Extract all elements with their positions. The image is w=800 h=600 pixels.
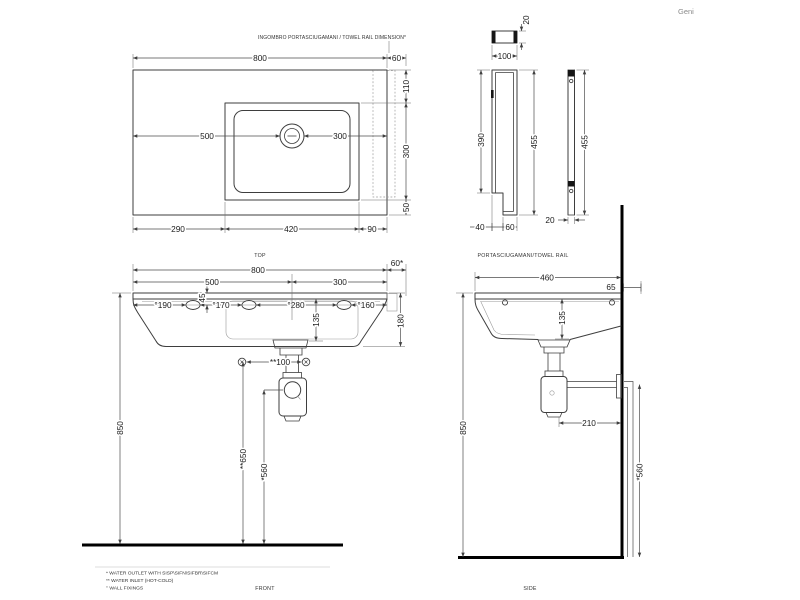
dim-top-drain-to-right: 300 bbox=[333, 131, 347, 141]
dim-front-width: 800 bbox=[251, 265, 265, 275]
dim-fix-drop: 45 bbox=[197, 293, 207, 303]
dim-top-side: 300 bbox=[401, 144, 411, 158]
dim-top-right: 90 bbox=[367, 224, 377, 234]
dim-top-front: 50 bbox=[401, 203, 411, 213]
dim-side-basin-depth: 135 bbox=[557, 311, 567, 325]
dim-rail-foot-b: 60 bbox=[505, 222, 515, 232]
dim-front-height: 180 bbox=[396, 314, 406, 328]
dim-fix4: °160 bbox=[357, 300, 375, 310]
slab-front bbox=[133, 293, 387, 299]
dim-rail-top-width: 100 bbox=[498, 51, 512, 61]
dim-side-rail: 65 bbox=[606, 282, 616, 292]
technical-drawing: INGOMBRO PORTASCIUGAMANI / TOWEL RAIL DI… bbox=[0, 0, 800, 600]
dim-inlet-span: **100 bbox=[270, 357, 291, 367]
footnotes: * WATER OUTLET WITH SISP\SIFN\SIFBR\SIFC… bbox=[95, 567, 330, 592]
dim-side-depth: 460 bbox=[540, 273, 554, 283]
footnote-fixings: ° WALL FIXINGS bbox=[106, 586, 144, 592]
fixing-hole-side bbox=[609, 300, 614, 305]
dim-top-left: 290 bbox=[171, 224, 185, 234]
dim-front-left-to-drain: 500 bbox=[205, 277, 219, 287]
bowl-outer-top bbox=[225, 103, 359, 200]
dim-front-outlet-height: *560 bbox=[259, 463, 269, 480]
rail-bracket-front bbox=[387, 294, 397, 312]
dim-fix3: °280 bbox=[287, 300, 305, 310]
dim-front-rail: 60* bbox=[391, 258, 404, 268]
in-wall-pipe bbox=[624, 382, 633, 558]
dim-front-fix-height: 850 bbox=[115, 421, 125, 435]
bowl-inner-top bbox=[234, 111, 350, 193]
top-view: INGOMBRO PORTASCIUGAMANI / TOWEL RAIL DI… bbox=[133, 35, 411, 259]
towel-rail-note: INGOMBRO PORTASCIUGAMANI / TOWEL RAIL DI… bbox=[258, 35, 406, 41]
dim-fix1: °190 bbox=[154, 300, 172, 310]
towel-rail-views: 20 100 390 455 40 60 bbox=[470, 15, 590, 259]
water-inlet-symbol-right bbox=[302, 358, 310, 366]
dim-rail-foot-a: 40 bbox=[475, 222, 485, 232]
dim-top-back: 110 bbox=[401, 80, 411, 94]
dim-top-width: 800 bbox=[253, 53, 267, 63]
side-caption: SIDE bbox=[523, 586, 537, 592]
top-view-caption: TOP bbox=[254, 253, 266, 259]
siphon-side bbox=[538, 340, 633, 557]
footnote-outlet: * WATER OUTLET WITH SISP\SIFN\SIFBR\SIFC… bbox=[106, 571, 218, 577]
dim-trap-offset: 210 bbox=[582, 418, 596, 428]
basin-body-side bbox=[475, 299, 621, 340]
dim-top-basin: 420 bbox=[284, 224, 298, 234]
dim-rail-top-thickness: 20 bbox=[521, 15, 531, 25]
siphon-front bbox=[273, 340, 308, 421]
dim-side-fix-height: 850 bbox=[458, 421, 468, 435]
water-inlet-symbol-left bbox=[238, 358, 246, 366]
side-view: 135 210 460 65 8 bbox=[456, 205, 645, 592]
trap-outlet bbox=[284, 382, 300, 398]
dim-side-outlet-height: *560 bbox=[635, 463, 645, 480]
rail-side-view bbox=[568, 70, 575, 215]
rail-top-view bbox=[492, 31, 517, 43]
dim-top-rail: 60 bbox=[392, 53, 402, 63]
dim-rail-side-height: 455 bbox=[580, 135, 590, 149]
dim-fix2: °170 bbox=[212, 300, 230, 310]
rail-caption: PORTASCIUGAMANI/TOWEL RAIL bbox=[477, 253, 568, 259]
footnote-inlet: ** WATER INLET (HOT-COLD) bbox=[106, 578, 174, 584]
basin-outline-top bbox=[133, 70, 387, 215]
towel-rail-footprint bbox=[373, 71, 395, 198]
dim-front-inlet-height: **650 bbox=[238, 448, 248, 469]
dim-rail-front-inner: 390 bbox=[476, 133, 486, 147]
brand-text: Geni bbox=[678, 7, 694, 16]
dim-front-basin-depth: 135 bbox=[311, 313, 321, 327]
fixing-hole-side bbox=[502, 300, 507, 305]
dim-front-drain-to-right: 300 bbox=[333, 277, 347, 287]
front-view: °190 °170 °280 °160 45 135 180 800 60* 5… bbox=[82, 258, 406, 592]
slab-side bbox=[475, 293, 621, 299]
dim-top-left-to-drain: 500 bbox=[200, 131, 214, 141]
front-caption: FRONT bbox=[255, 586, 275, 592]
dim-rail-front-height: 455 bbox=[529, 135, 539, 149]
drawing-sheet: INGOMBRO PORTASCIUGAMANI / TOWEL RAIL DI… bbox=[0, 0, 800, 600]
dim-rail-side-thickness: 20 bbox=[545, 215, 555, 225]
